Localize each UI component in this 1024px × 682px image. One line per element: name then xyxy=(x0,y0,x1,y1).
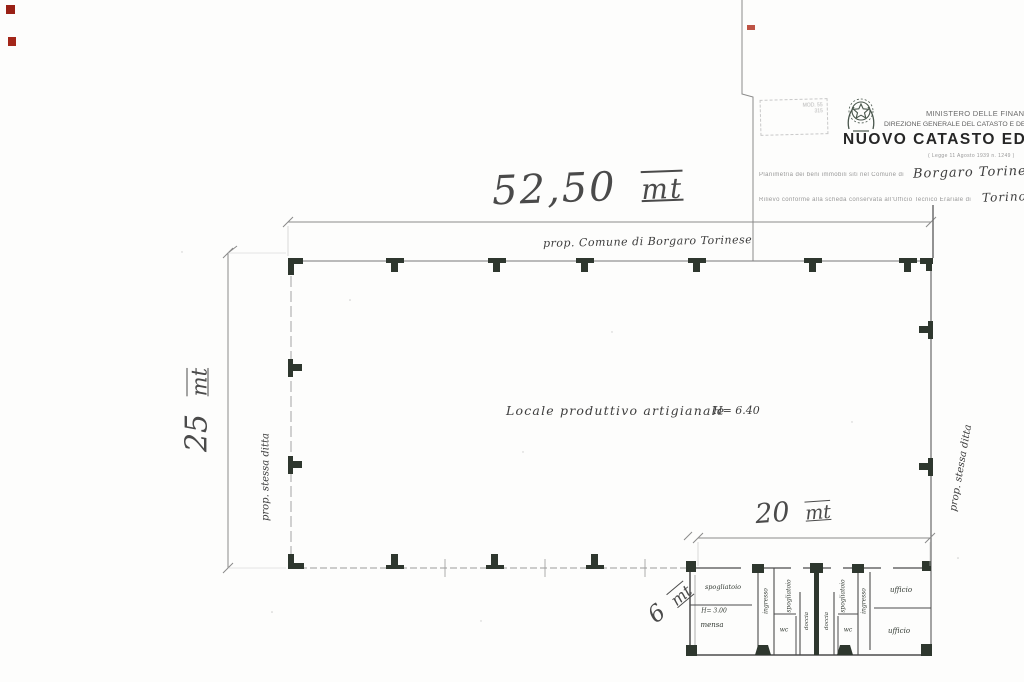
dimension-annex-width: 20 mt xyxy=(754,494,832,530)
dimension-width-unit: mt xyxy=(641,172,684,206)
stamp-number: 315 xyxy=(765,108,823,116)
dimension-height-value: 25 xyxy=(180,414,215,452)
room-label-mensa-height: H= 3.00 xyxy=(701,608,727,615)
room-label-ufficio-top: ufficio xyxy=(890,586,912,594)
room-label-spogliatoio-a: spogliatoio xyxy=(705,583,741,591)
main-room-height: H= 6.40 xyxy=(713,404,760,417)
form-line-ufficio: Rilievo conforme alla scheda conservata … xyxy=(759,190,1024,204)
dimension-height-unit: mt xyxy=(188,368,212,396)
ministry-line1: MINISTERO DELLE FINANZE xyxy=(926,109,1024,118)
main-room-label: Locale produttivo artigianale xyxy=(506,403,725,418)
dimension-annex-width-unit: mt xyxy=(805,501,832,525)
dimension-annex-width-value: 20 xyxy=(754,497,790,530)
ministry-line2: DIREZIONE GENERALE DEL CATASTO E DEI SER… xyxy=(884,121,1024,128)
room-label-ufficio-bottom: ufficio xyxy=(888,627,910,635)
room-label-mensa: mensa xyxy=(700,621,723,629)
room-label-ingresso-right: ingresso xyxy=(861,588,868,614)
dimension-height: 25 mt xyxy=(180,368,215,452)
form-line-comune: Planimetria dei beni immobili siti nel C… xyxy=(759,165,1024,180)
main-hall-walls xyxy=(290,261,931,655)
form-line1-printed: Planimetria dei beni immobili siti nel C… xyxy=(759,172,904,178)
dimension-width: 52,50 mt xyxy=(491,162,684,215)
dimension-width-value: 52,50 xyxy=(491,164,617,214)
scan-artifact xyxy=(6,5,755,46)
room-label-doccia-left: doccia xyxy=(804,612,810,630)
boundary-label-left: prop. stessa ditta xyxy=(261,433,272,521)
scanned-cadastral-document: MOD. 55 315 MINISTERO DELLE FINANZE DIRE… xyxy=(0,0,1024,682)
form-line1-handwritten: Borgaro Torinese xyxy=(913,163,1024,181)
room-label-wc-right: wc xyxy=(844,627,853,634)
italy-emblem-icon xyxy=(843,95,879,135)
room-label-doccia-right: doccia xyxy=(824,612,830,630)
room-label-wc-left: wc xyxy=(780,627,789,634)
registry-stamp-box: MOD. 55 315 xyxy=(760,98,829,136)
room-label-spogliatoio-b: spogliatoio xyxy=(786,579,793,612)
form-line2-handwritten: Torino xyxy=(982,189,1024,205)
room-label-ingresso-left: ingresso xyxy=(763,588,770,614)
form-line2-printed: Rilievo conforme alla scheda conservata … xyxy=(759,197,971,203)
document-title: NUOVO CATASTO EDILIZIO xyxy=(843,131,1024,149)
document-subtitle: ( Legge 11 Agosto 1939 n. 1249 ) xyxy=(928,153,1015,159)
room-label-spogliatoio-c: spogliatoio xyxy=(840,579,847,612)
